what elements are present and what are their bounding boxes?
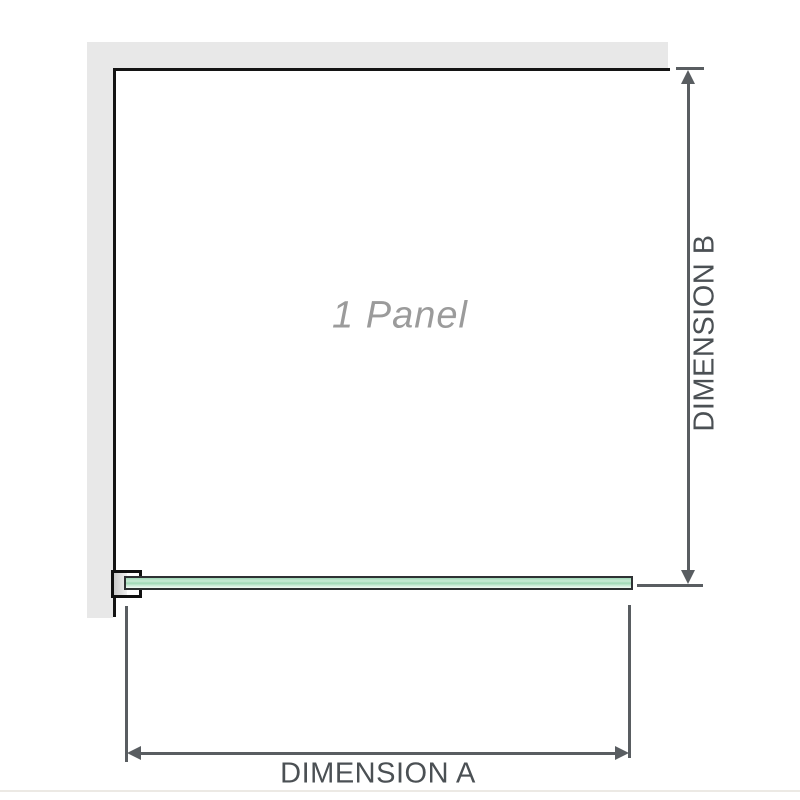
dimension-a-right-extension: [628, 605, 631, 758]
dimension-b-label: DIMENSION B: [689, 234, 722, 431]
wall-left-strip: [87, 42, 113, 618]
dimension-b-bottom-tick: [637, 584, 703, 587]
image-bottom-edge: [0, 790, 800, 792]
dimension-a-label: DIMENSION A: [280, 758, 476, 791]
arrow-up-icon: [681, 70, 695, 84]
panel-outline-left: [113, 68, 116, 617]
dimension-a-arrow-line: [131, 752, 625, 755]
shower-screen-dimension-diagram: 1 Panel DIMENSION B DIMENSION A: [0, 0, 800, 800]
glass-panel-bar: [124, 576, 633, 590]
wall-top-strip: [87, 42, 668, 69]
arrow-right-icon: [615, 746, 629, 760]
panel-outline-top: [113, 68, 670, 71]
dimension-a-left-extension: [125, 606, 128, 762]
arrow-left-icon: [127, 746, 141, 760]
arrow-down-icon: [681, 570, 695, 584]
panel-count-label: 1 Panel: [332, 295, 468, 338]
